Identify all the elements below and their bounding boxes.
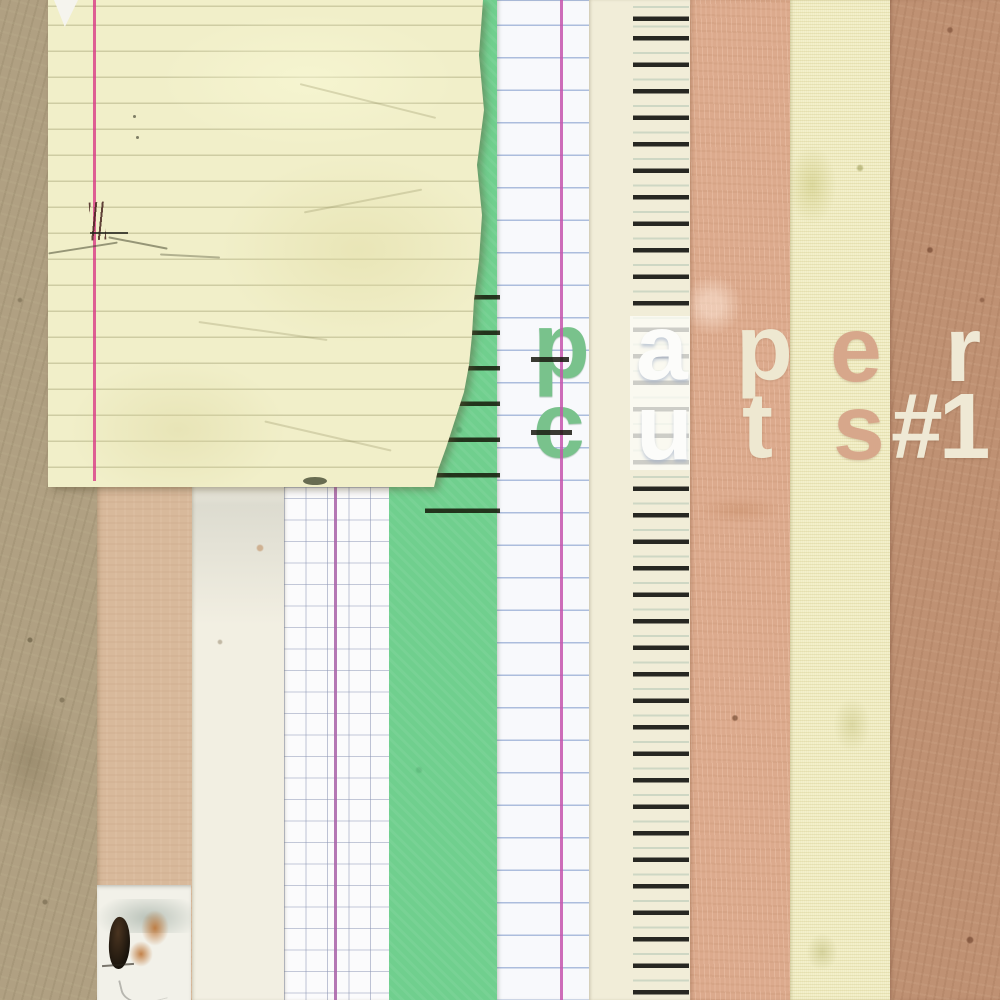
notepad-paper — [48, 0, 488, 487]
strip-ruled-notebook — [497, 0, 589, 1000]
rule-fragment — [531, 357, 569, 362]
crease-line — [160, 253, 220, 258]
letter-t: t — [742, 379, 773, 472]
crease-line — [48, 242, 117, 255]
torn-notepad-sheet — [48, 0, 488, 487]
staple-mark — [90, 232, 128, 234]
strip-canvas — [790, 0, 890, 1000]
strip-salmon-kraft — [690, 0, 790, 1000]
letter-c: c — [533, 379, 585, 472]
notebook-margin-line — [560, 0, 563, 1000]
torn-corner-notch — [54, 0, 78, 27]
crease-line — [304, 189, 422, 213]
scrap-crease — [118, 970, 168, 1000]
letter-u: u — [636, 381, 693, 474]
staple-icon — [89, 202, 107, 241]
letter-number-1: #1 — [891, 380, 986, 473]
crease-line — [300, 83, 436, 118]
paper-collage-cover: p a p e r c u t s #1 — [0, 0, 1000, 1000]
ink-speck — [136, 136, 139, 139]
strip-cream-ledger — [589, 0, 690, 1000]
ledger-tick-column — [633, 0, 689, 1000]
letter-s: s — [833, 381, 885, 474]
crease-line — [199, 321, 328, 341]
edge-smudge — [303, 477, 327, 485]
stained-paper-scrap — [97, 885, 191, 1000]
notepad-margin-line — [93, 0, 96, 481]
rule-fragment — [531, 430, 572, 435]
crease-line — [264, 420, 391, 451]
strip-brown-kraft — [890, 0, 1000, 1000]
ink-speck — [133, 115, 136, 118]
